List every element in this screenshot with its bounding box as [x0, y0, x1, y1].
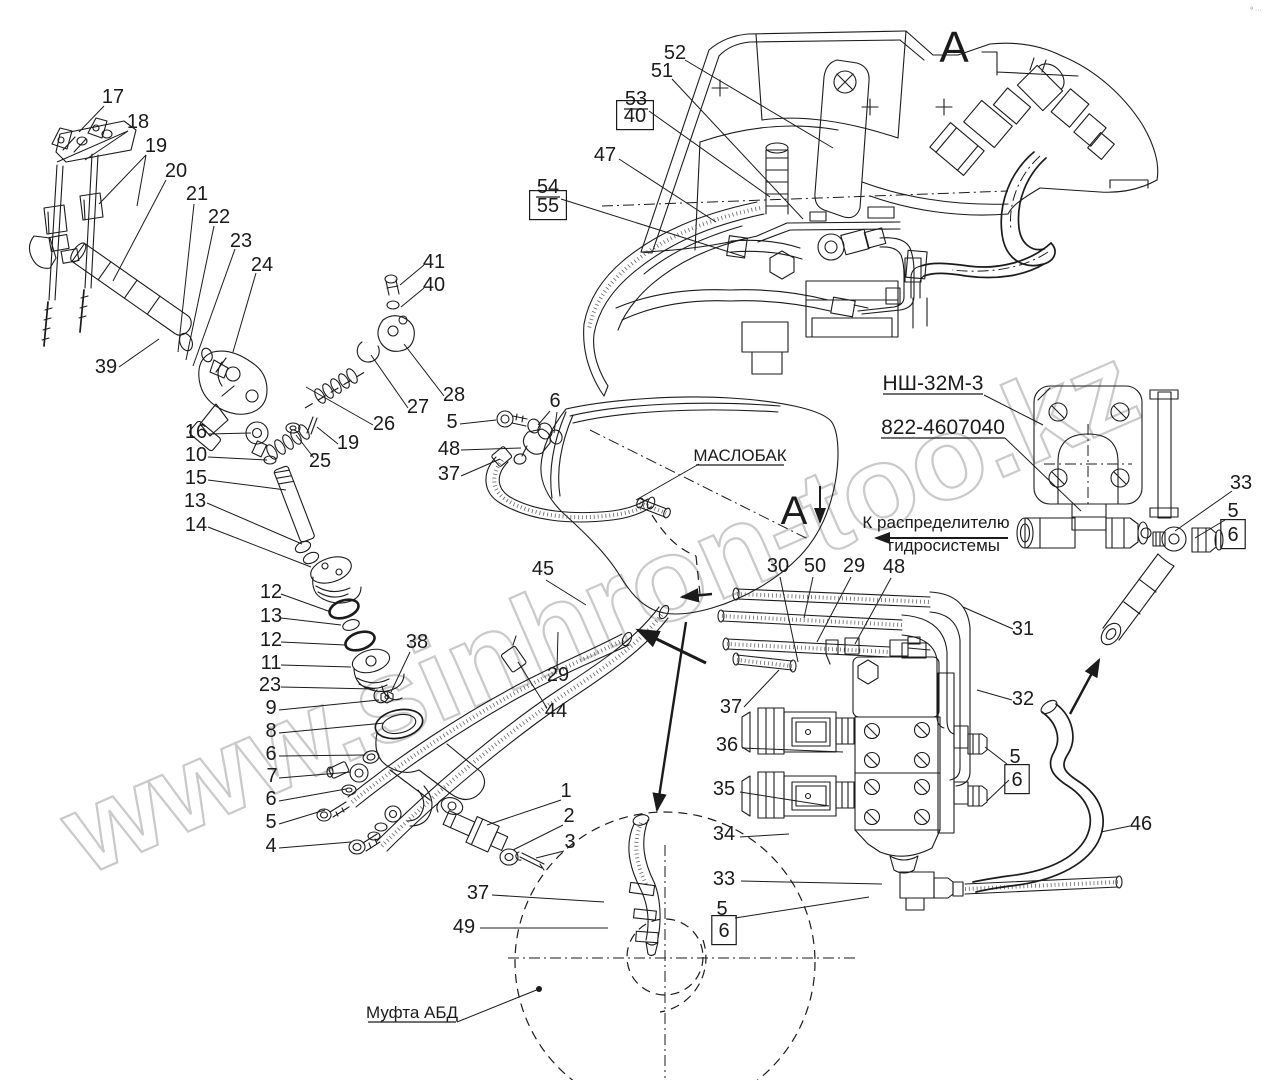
part-number-21-4: 21	[186, 183, 208, 205]
spring-27	[305, 367, 368, 408]
part-number-32-70: 32	[1012, 688, 1034, 710]
part-number-17-0: 17	[102, 86, 124, 108]
part-number-53-48-leader-0	[649, 111, 770, 197]
diagram-label-3: К распределителю	[862, 513, 1009, 532]
view-letter-0: A	[939, 23, 969, 72]
diagram-label-5-leader-0	[457, 989, 539, 1022]
part-number-48-44: 48	[438, 438, 460, 460]
part-number-26-13: 26	[373, 413, 395, 435]
part-number-27-12: 27	[407, 396, 429, 418]
part-number-51-47-leader-0	[672, 79, 803, 219]
part-number-51-47: 51	[651, 60, 673, 82]
part-number-1-37-leader-0	[487, 800, 561, 825]
part-number-40-10-leader-0	[401, 288, 424, 307]
part-number-6-68: 6	[1011, 769, 1022, 791]
part-number-6-68-leader-0	[987, 780, 1009, 801]
part-number-5-42: 5	[446, 411, 457, 433]
part-number-36-61: 36	[716, 734, 738, 756]
part-number-47-50-leader-0	[619, 159, 716, 222]
part-number-4-32-leader-0	[279, 842, 351, 848]
part-number-37-40-leader-0	[492, 895, 604, 902]
part-number-5-42-leader-0	[460, 420, 496, 424]
part-number-34-63: 34	[713, 823, 735, 845]
part-number-33-64-leader-0	[741, 881, 882, 884]
part-number-55-52: 55	[537, 195, 559, 217]
part-number-7-29: 7	[266, 765, 277, 787]
part-number-48-59-leader-0	[855, 578, 891, 644]
part-number-37-40: 37	[467, 882, 489, 904]
direction-arrow-5	[1070, 660, 1099, 714]
part-number-36-61-leader-0	[742, 748, 843, 752]
part-number-20-3: 20	[165, 160, 187, 182]
part-number-12-21-leader-0	[281, 594, 331, 612]
part-number-12-21: 12	[260, 581, 282, 603]
part-number-13-17: 13	[184, 490, 206, 512]
part-number-9-26: 9	[265, 697, 276, 719]
part-number-39-8: 39	[95, 356, 117, 378]
part-number-28-11: 28	[443, 384, 465, 406]
part-number-12-23-leader-0	[281, 642, 345, 645]
part-number-34-63-leader-0	[740, 834, 789, 837]
part-number-20-3-leader-0	[113, 180, 166, 281]
part-number-31-69: 31	[1012, 618, 1034, 640]
part-number-47-50: 47	[594, 144, 616, 166]
part-number-37-45: 37	[438, 463, 460, 485]
part-number-10-15-leader-0	[208, 457, 267, 460]
part-number-6-28: 6	[265, 743, 276, 765]
part-number-22-5: 22	[208, 206, 230, 228]
part-number-2-38-leader-0	[513, 825, 563, 850]
diagram-label-1: НШ-32М-3	[883, 372, 984, 395]
part-number-44-36: 44	[545, 700, 567, 722]
part-number-5-65: 5	[716, 898, 727, 920]
diagram-label-5-dot	[536, 986, 542, 992]
part-number-18-1-leader-1	[85, 131, 128, 160]
part-number-15-16: 15	[185, 467, 207, 489]
part-number-13-22: 13	[260, 605, 282, 627]
diagram-label-5: Муфта АБД	[366, 1003, 459, 1022]
part-number-46-71: 46	[1130, 813, 1152, 835]
part-number-21-4-leader-0	[178, 204, 194, 352]
part-number-12-23: 12	[260, 629, 282, 651]
part-number-15-16-leader-0	[208, 480, 286, 490]
part-number-2-38: 2	[563, 805, 574, 827]
part-number-19-19: 19	[337, 432, 359, 454]
spring-26	[265, 423, 312, 461]
part-number-35-62: 35	[713, 778, 735, 800]
part-number-28-11-leader-0	[404, 344, 444, 396]
part-number-54-51-leader-0	[561, 199, 745, 257]
part-number-10-15: 10	[185, 444, 207, 466]
diagram-label-0-leader-0	[636, 464, 699, 500]
part-number-41-9-leader-0	[400, 265, 424, 285]
part-number-25-20: 25	[309, 450, 331, 472]
part-number-29-35: 29	[547, 664, 569, 686]
part-number-22-5-leader-0	[186, 226, 214, 360]
diagram-svg: www.sinhron-too.kz	[0, 0, 1269, 1080]
part-number-37-45-leader-0	[461, 459, 500, 476]
part-number-30-56: 30	[767, 555, 789, 577]
parts-diagram-page: www.sinhron-too.kz	[0, 0, 1269, 1080]
part-number-1-37: 1	[560, 780, 571, 802]
part-number-14-18: 14	[185, 514, 207, 536]
part-number-29-58-leader-0	[817, 577, 851, 642]
part-number-13-22-leader-0	[281, 618, 341, 625]
part-number-18-1: 18	[127, 111, 149, 133]
part-number-5-31: 5	[265, 811, 276, 833]
part-number-3-39: 3	[564, 831, 575, 853]
part-number-41-9: 41	[423, 251, 445, 273]
view-letter-1: A	[781, 489, 808, 533]
part-number-19-2: 19	[145, 135, 167, 157]
part-number-33-53: 33	[1230, 472, 1252, 494]
part-number-8-27: 8	[265, 720, 276, 742]
part-number-46-71-leader-0	[1101, 826, 1130, 832]
part-number-24-7: 24	[251, 254, 273, 276]
part-number-31-69-leader-0	[963, 607, 1013, 629]
part-number-33-53-leader-0	[1175, 491, 1232, 531]
hose-bundle-47	[584, 202, 764, 396]
part-number-37-60-leader-0	[744, 670, 779, 707]
part-number-32-70-leader-0	[977, 690, 1012, 700]
part-number-49-41: 49	[453, 916, 475, 938]
part-number-19-19-leader-0	[317, 427, 338, 444]
part-number-16-14: 16	[185, 421, 207, 443]
part-number-27-12-leader-0	[371, 355, 408, 408]
part-number-37-60: 37	[720, 696, 742, 718]
part-number-40-49: 40	[624, 105, 646, 127]
part-number-40-10: 40	[423, 274, 445, 296]
part-number-45-34: 45	[532, 558, 554, 580]
part-number-50-57: 50	[804, 555, 826, 577]
part-number-23-6-leader-0	[193, 249, 235, 366]
diagram-label-0: МАСЛОБАК	[693, 446, 786, 465]
part-number-6-66: 6	[718, 920, 729, 942]
watermark-layer: www.sinhron-too.kz	[43, 318, 1156, 900]
part-number-5-54: 5	[1227, 500, 1238, 522]
part-number-23-6: 23	[230, 230, 252, 252]
solenoid-36	[742, 708, 854, 754]
part-number-29-58: 29	[843, 555, 865, 577]
part-number-5-67-leader-0	[985, 747, 1007, 764]
part-number-33-64: 33	[713, 868, 735, 890]
diagram-label-2: 822-4607040	[881, 416, 1005, 439]
part-number-24-7-leader-0	[233, 273, 256, 352]
part-number-48-44-leader-0	[461, 448, 521, 450]
part-number-6-55: 6	[1227, 524, 1238, 546]
corner-note: º ···	[1251, 7, 1263, 14]
part-number-23-25: 23	[259, 674, 281, 696]
watermark-text: www.sinhron-too.kz	[43, 318, 1156, 900]
part-number-6-43: 6	[549, 390, 560, 412]
part-number-6-30: 6	[265, 788, 276, 810]
part-number-11-24: 11	[261, 652, 282, 674]
part-number-4-32: 4	[265, 835, 276, 857]
part-number-48-59: 48	[883, 556, 905, 578]
part-number-38-33: 38	[406, 631, 428, 653]
part-number-39-8-leader-0	[119, 339, 159, 367]
